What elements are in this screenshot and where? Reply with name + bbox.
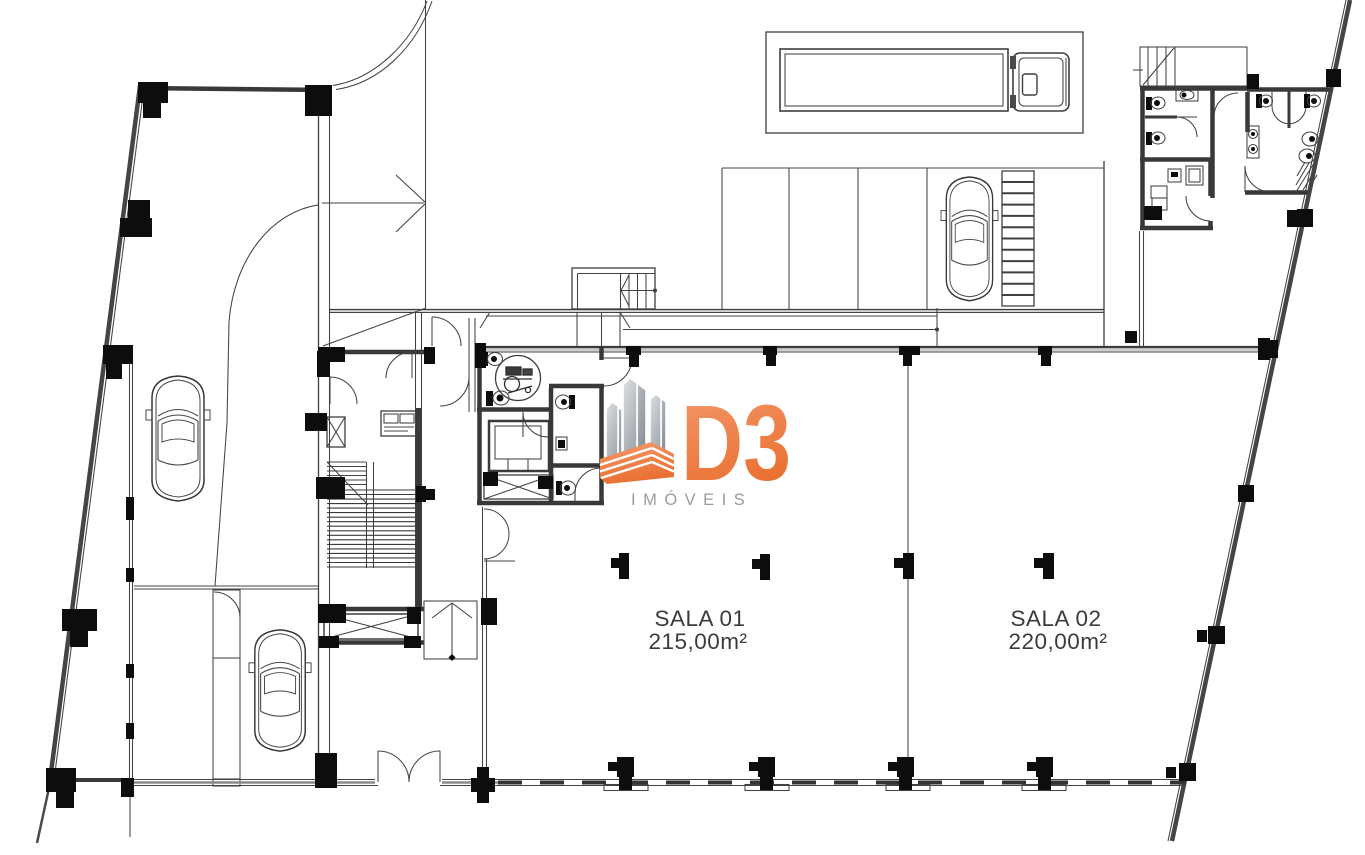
- svg-text:SALA 01: SALA 01: [654, 606, 745, 631]
- svg-text:IMÓVEIS: IMÓVEIS: [631, 490, 752, 509]
- svg-text:215,00m²: 215,00m²: [648, 629, 747, 654]
- svg-text:D3: D3: [681, 382, 791, 503]
- svg-text:SALA 02: SALA 02: [1010, 606, 1101, 631]
- svg-text:220,00m²: 220,00m²: [1008, 629, 1107, 654]
